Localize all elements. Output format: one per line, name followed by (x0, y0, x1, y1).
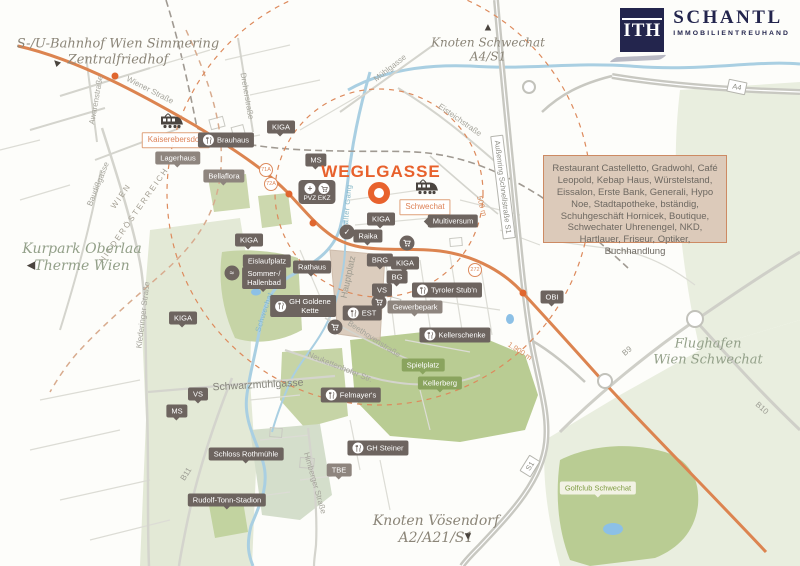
logo-subtitle: IMMOBILIENTREUHAND (673, 30, 790, 37)
logo-text: SCHANTL IMMOBILIENTREUHAND (673, 8, 790, 37)
logo-company-name: SCHANTL (673, 8, 790, 27)
badge-obi-label: OBI (546, 293, 559, 302)
border-label-0: WIEN (109, 182, 133, 211)
street-label-3: Dreherstraße (238, 72, 255, 120)
fork-knife-icon (348, 308, 359, 319)
badge-multiversum: Multiversum (428, 215, 478, 228)
shield-a4: A4 (726, 79, 747, 96)
badge-gewerbepark: Gewerbepark (387, 301, 442, 314)
badge-rudolf-tonn-stadion-label: Rudolf-Tonn-Stadion (193, 496, 261, 505)
cart-icon (400, 236, 415, 251)
label-bahnhof-simmering-line-1: Zentralfriedhof (17, 52, 219, 68)
badge-kaiserebersdorf-label: Kaiserebersdorf (148, 135, 204, 144)
badge-kiga-2-label: KIGA (372, 215, 390, 224)
street-label-5: Eisteichstraße (437, 102, 484, 138)
badge-vs-1-label: VS (377, 286, 387, 295)
label-knoten-schwechat-arrow: ▲ (483, 23, 494, 34)
badge-tbe-label: TBE (332, 466, 347, 475)
badge-gh-goldene-kette-label: GH GoldeneKette (289, 297, 331, 315)
label-kurpark-oberlaa: Kurpark OberlaaTherme Wien (22, 241, 141, 275)
badge-gh-steiner-label: GH Steiner (366, 444, 403, 453)
street-label-11: Hauptplatz (339, 255, 358, 299)
cart-icon (328, 320, 343, 335)
map-overlay: Wiener StraßeAwarenstraßeBaudißgasseDreh… (0, 0, 800, 566)
badge-multiversum-label: Multiversum (433, 217, 473, 226)
distance-label-0: 500 m (475, 195, 489, 217)
badge-kellerschenke-label: Kellerschenke (438, 331, 485, 340)
distance-label-1: 1.900 m (506, 340, 534, 362)
badge-ms-2: MS (166, 405, 187, 418)
badge-kiga-2: KIGA (367, 213, 395, 226)
badge-ms-1-label: MS (310, 156, 321, 165)
shield-s1: S1 (519, 454, 540, 477)
fork-knife-icon (203, 135, 214, 146)
badge-bg-label: BG (392, 273, 403, 282)
badge-spielplatz-label: Spielplatz (407, 361, 440, 370)
badge-kiga-3-label: KIGA (240, 236, 258, 245)
badge-ms-2-label: MS (171, 407, 182, 416)
badge-kiga-4-label: KIGA (174, 314, 192, 323)
badge-vs-1: VS (372, 284, 392, 297)
label-flughafen-line-1: Wien Schwechat (653, 352, 763, 368)
badge-est: EST (343, 306, 382, 321)
fork-knife-icon (352, 443, 363, 454)
badge-gh-steiner: GH Steiner (347, 441, 408, 456)
badge-bellaflora-label: Bellaflora (208, 172, 239, 181)
badge-raika: Raika (353, 230, 382, 243)
label-knoten-voesendorf-line-1: A2/A21/S1 (373, 530, 499, 547)
badge-rudolf-tonn-stadion: Rudolf-Tonn-Stadion (188, 494, 266, 507)
badge-sommer-hallenbad-label: Sommer-/Hallenbad (247, 269, 281, 287)
street-label-0: Wiener Straße (125, 74, 175, 105)
amenities-info-box: Restaurant Castelletto, Gradwohl, Café L… (543, 155, 727, 243)
label-knoten-voesendorf-arrow: ▼ (463, 532, 474, 543)
badge-spielplatz: Spielplatz (402, 359, 445, 372)
street-label-10: Himberger Straße (302, 451, 328, 515)
label-kurpark-oberlaa-arrow: ◀ (27, 261, 35, 272)
badge-kiga-1-label: KIGA (272, 123, 290, 132)
badge-kiga-5: KIGA (391, 257, 419, 270)
bus-stop-71A: 71A (259, 163, 273, 177)
badge-est-label: EST (362, 309, 377, 318)
label-knoten-voesendorf: Knoten VösendorfA2/A21/S1 (373, 513, 499, 547)
label-flughafen: FlughafenWien Schwechat (653, 336, 763, 367)
badge-kiga-3: KIGA (235, 234, 263, 247)
badge-bg: BG (387, 271, 408, 284)
badge-vs-2: VS (188, 388, 208, 401)
label-knoten-schwechat-line-0: Knoten Schwechat (431, 36, 545, 50)
street-label-4: Mühlgasse (372, 53, 408, 84)
badge-kiga-5-label: KIGA (396, 259, 414, 268)
pharmacy-cross-icon: + (305, 183, 316, 194)
fork-knife-icon (326, 390, 337, 401)
street-label-8: Neukettenhofer Str. (306, 350, 373, 384)
badge-obi: OBI (541, 291, 564, 304)
badge-raika-label: Raika (358, 232, 377, 241)
badge-lagerhaus: Lagerhaus (155, 152, 200, 165)
label-kurpark-oberlaa-line-0: Kurpark Oberlaa (22, 241, 141, 258)
badge-eislaufplatz: Eislaufplatz (243, 255, 291, 268)
train-station-kaiserebersdorf (159, 114, 185, 129)
property-title: WEGLGASSE (321, 162, 441, 182)
location-map: Wiener StraßeAwarenstraßeBaudißgasseDreh… (0, 0, 800, 566)
badge-golfclub-schwechat: Golfclub Schwechat (560, 482, 636, 495)
street-label-1: Awarenstraße (87, 75, 104, 125)
badge-lagerhaus-label: Lagerhaus (160, 154, 195, 163)
fork-knife-icon (275, 301, 286, 312)
badge-kellerberg: Kellerberg (418, 377, 462, 390)
badge-tyroler-stubn: Tyroler Stub'n (412, 283, 482, 298)
badge-brauhaus: Brauhaus (198, 133, 254, 148)
badge-pvz-ekz-label: PVZ EKZ (303, 195, 330, 202)
label-kurpark-oberlaa-line-1: Therme Wien (22, 258, 141, 275)
badge-tbe: TBE (327, 464, 352, 477)
road-b11: B11 (179, 466, 194, 482)
property-marker-icon (368, 182, 390, 204)
badge-rathaus: Rathaus (293, 261, 331, 274)
badge-rathaus-label: Rathaus (298, 263, 326, 272)
badge-felmayers-label: Felmayer's (340, 391, 376, 400)
badge-gewerbepark-label: Gewerbepark (392, 303, 437, 312)
badge-schwechat: Schwechat (399, 199, 450, 215)
street-label-6: Klederinger Straße (134, 281, 151, 349)
river-label-kalter-gang: Kalter Gang (341, 184, 354, 230)
bus-stop-272: 272 (468, 263, 482, 277)
badge-schwechat-label: Schwechat (405, 202, 444, 211)
badge-bellaflora: Bellaflora (203, 170, 244, 183)
street-label-9: Beethovenstraße (346, 319, 402, 360)
company-logo: ITH SCHANTL IMMOBILIENTREUHAND (620, 8, 790, 52)
badge-sommer-hallenbad: Sommer-/Hallenbad (242, 267, 286, 289)
badge-tyroler-stubn-label: Tyroler Stub'n (431, 286, 477, 295)
badge-schloss-rothmuehle: Schloss Rothmühle (209, 448, 284, 461)
label-knoten-schwechat: Knoten SchwechatA4/S1 (431, 36, 545, 65)
badge-brg: BRG (367, 254, 393, 267)
badge-kiga-4: KIGA (169, 312, 197, 325)
road-b10: B10 (754, 400, 771, 416)
street-label-2: Baudißgasse (85, 161, 111, 208)
shield-aussenring-s1: Außenring Schnellstraße S1 (490, 135, 516, 240)
badge-brauhaus-label: Brauhaus (217, 136, 249, 145)
street-label-7: Schwarzmühlgasse (212, 377, 304, 394)
label-bahnhof-simmering: S-/U-Bahnhof Wien SimmeringZentralfriedh… (17, 36, 219, 67)
check-icon: ✓ (340, 225, 355, 240)
badge-kiga-1: KIGA (267, 121, 295, 134)
badge-gh-goldene-kette: GH GoldeneKette (270, 295, 336, 317)
badge-eislaufplatz-label: Eislaufplatz (248, 257, 286, 266)
ith-logo-icon: ITH (620, 8, 664, 52)
badge-kellerschenke: Kellerschenke (419, 328, 490, 343)
fork-knife-icon (417, 285, 428, 296)
badge-pvz-ekz: +PVZ EKZ (298, 180, 335, 204)
label-flughafen-line-0: Flughafen (653, 336, 763, 352)
label-bahnhof-simmering-line-0: S-/U-Bahnhof Wien Simmering (17, 36, 219, 52)
badge-golfclub-schwechat-label: Golfclub Schwechat (565, 484, 631, 493)
logo-mark-text: ITH (622, 18, 662, 42)
fork-knife-icon (424, 330, 435, 341)
badge-kellerberg-label: Kellerberg (423, 379, 457, 388)
label-knoten-schwechat-line-1: A4/S1 (431, 50, 545, 64)
plaza-icons: + (305, 183, 330, 194)
swim-icon: ≈ (225, 266, 240, 281)
badge-brg-label: BRG (372, 256, 388, 265)
badge-schloss-rothmuehle-label: Schloss Rothmühle (214, 450, 279, 459)
badge-felmayers: Felmayer's (321, 388, 381, 403)
badge-vs-2-label: VS (193, 390, 203, 399)
bus-stop-72A: 72A (264, 177, 278, 191)
label-knoten-voesendorf-line-0: Knoten Vösendorf (373, 513, 499, 530)
shopping-cart-icon (319, 183, 330, 194)
road-b9: B9 (620, 344, 633, 357)
